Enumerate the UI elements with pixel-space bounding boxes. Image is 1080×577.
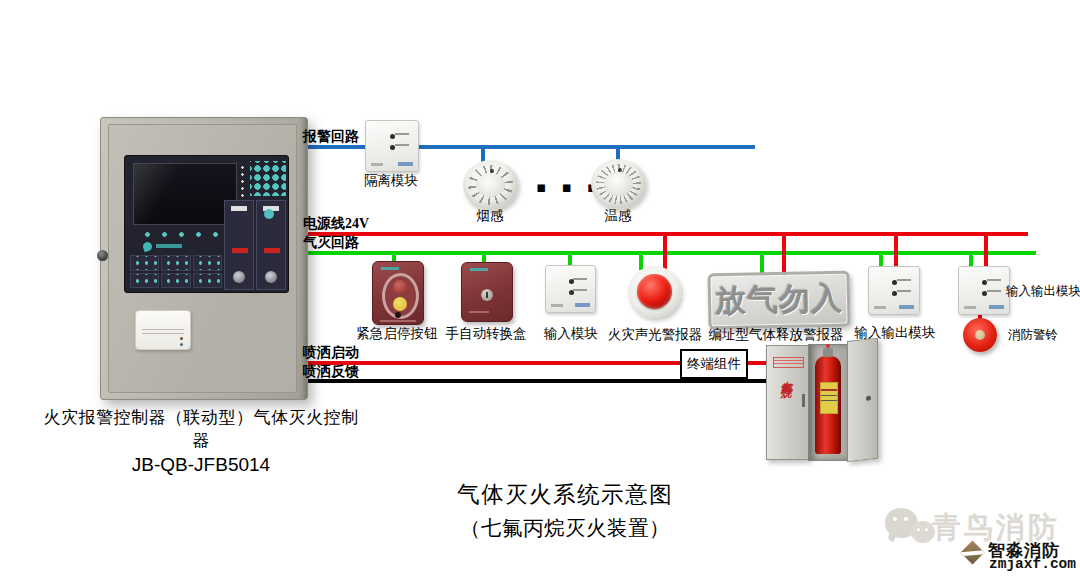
diagram-title: 气体灭火系统示意图 （七氟丙烷灭火装置） bbox=[420, 479, 710, 542]
spray-start-label: 喷洒启动 bbox=[303, 344, 359, 362]
panel-caption: 火灾报警控制器（联动型）气体灭火控制器 JB-QB-JFB5014 bbox=[35, 406, 367, 476]
panel-control-area bbox=[124, 155, 289, 293]
sound-light-alarm-label: 火灾声光警报器 bbox=[605, 326, 705, 344]
panel-keypad bbox=[250, 161, 286, 196]
panel-brand-logo bbox=[143, 242, 185, 251]
cabinet-name-plate bbox=[773, 357, 804, 368]
manual-auto-switch-box bbox=[461, 262, 513, 322]
gas-suppression-system-diagram: 火灾报警控制器（联动型）气体灭火控制器 JB-QB-JFB5014 报警回路 电… bbox=[0, 0, 1080, 577]
isolation-module bbox=[365, 120, 419, 172]
io-module-1 bbox=[868, 266, 920, 315]
io-module-1-label: 输入输出模块 bbox=[845, 324, 945, 342]
isolation-module-label: 隔离模块 bbox=[341, 172, 441, 190]
fire-sound-light-alarm bbox=[628, 266, 681, 318]
diagram-title-line1: 气体灭火系统示意图 bbox=[420, 479, 710, 510]
sign-gas-drop bbox=[760, 251, 764, 274]
panel-printer bbox=[135, 310, 191, 350]
smoke-detector bbox=[463, 160, 518, 210]
panel-caption-name: 火灾报警控制器（联动型）气体灭火控制器 bbox=[35, 406, 367, 452]
gas-release-alarm-label: 编址型气体释放警报器 bbox=[706, 326, 846, 344]
terminal-component: 终端组件 bbox=[680, 349, 748, 379]
io-module-2 bbox=[958, 266, 1010, 315]
io-module-2-label: 输入输出模块 bbox=[1006, 283, 1080, 300]
heat-detector-label: 温感 bbox=[568, 207, 668, 225]
cylinder-cabinet-open bbox=[808, 344, 849, 461]
cabinet-vertical-text: 七氟丙烷 bbox=[778, 372, 793, 380]
fire-bell bbox=[963, 318, 997, 352]
fire-bell-label: 消防警铃 bbox=[1008, 327, 1078, 344]
wechat-icon bbox=[885, 505, 939, 549]
emergency-start-stop-button bbox=[372, 261, 424, 325]
cylinder-cabinet-closed: 七氟丙烷 bbox=[766, 345, 810, 460]
power-line-label: 电源线24V bbox=[303, 215, 369, 233]
panel-caption-model: JB-QB-JFB5014 bbox=[35, 454, 367, 476]
cylinder-label bbox=[820, 382, 838, 414]
spray-feedback-label: 喷洒反馈 bbox=[303, 363, 359, 381]
cabinet-handle bbox=[802, 394, 805, 407]
zhimiao-logo-icon bbox=[961, 541, 985, 565]
spray-feedback-line bbox=[302, 379, 772, 383]
fire-alarm-control-panel bbox=[100, 117, 308, 400]
heat-detector bbox=[591, 159, 646, 209]
panel-control-strip-1 bbox=[224, 200, 254, 290]
panel-door bbox=[108, 124, 297, 393]
zhimiao-site-url: zmjaxf.com bbox=[989, 556, 1076, 572]
cabinet-open-door bbox=[847, 338, 878, 462]
sound-light-gas-drop bbox=[639, 251, 643, 270]
gas-release-sign-text: 放气勿入 bbox=[715, 278, 844, 323]
gas-cylinder bbox=[815, 356, 841, 454]
panel-lcd-screen bbox=[133, 163, 237, 225]
diagram-title-line2: （七氟丙烷灭火装置） bbox=[420, 514, 710, 542]
gas-loop-label: 气灭回路 bbox=[303, 234, 359, 252]
panel-softkeys bbox=[135, 228, 235, 237]
gas-loop-line bbox=[302, 251, 1036, 255]
input-module bbox=[545, 265, 596, 313]
smoke-detector-label: 烟感 bbox=[440, 207, 540, 225]
emergency-button-label: 紧急启停按钮 bbox=[347, 325, 447, 343]
cylinder-valve bbox=[823, 348, 833, 357]
alarm-loop-label: 报警回路 bbox=[303, 128, 359, 146]
io2-power-drop bbox=[984, 234, 988, 268]
sign-power-drop bbox=[782, 234, 786, 276]
gas-release-warning-sign: 放气勿入 bbox=[707, 271, 850, 330]
panel-lock-knob bbox=[97, 250, 108, 261]
io1-power-drop bbox=[894, 234, 898, 268]
panel-zone-indicators bbox=[130, 255, 222, 288]
sound-light-power-drop bbox=[663, 234, 667, 272]
